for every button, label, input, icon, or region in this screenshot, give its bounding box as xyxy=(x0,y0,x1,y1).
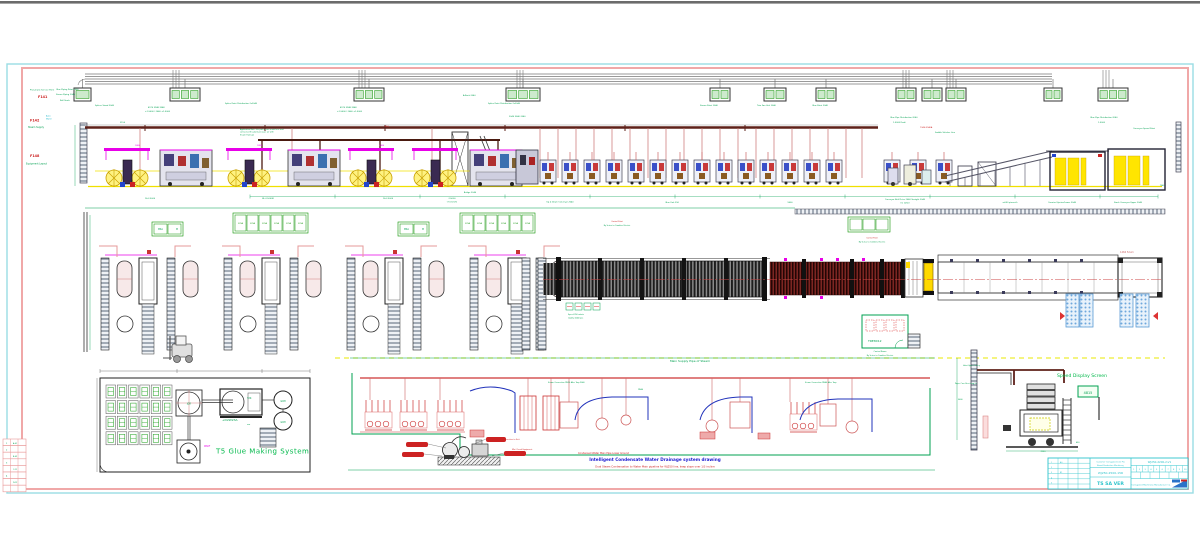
cad-shape xyxy=(356,91,363,99)
cad-shape xyxy=(827,91,834,99)
cad-shape xyxy=(924,91,931,99)
tiny-label: Splice Point Distribution 2x2040 xyxy=(225,102,258,105)
processing-machine xyxy=(470,150,522,186)
revision-row xyxy=(3,485,26,492)
flow-arrow-left xyxy=(1060,312,1065,320)
pallet-area xyxy=(1066,294,1149,327)
tiny-label: (7.5 km/h) xyxy=(447,202,458,204)
cad-drawing-viewport: 370A370A370A370A370A370A370A370A370A370A… xyxy=(0,0,1200,557)
cad-shape xyxy=(1046,91,1052,99)
tiny-label: 9600 xyxy=(787,202,793,204)
tb-company: Corrugated Machinery Manufacture Co. xyxy=(1131,484,1171,487)
cad-shape xyxy=(1054,91,1060,99)
control-room: TRE8X12 xyxy=(862,315,920,348)
label-strip xyxy=(848,217,890,232)
tiny-label: Glue Pipe Distribution 2040 xyxy=(1090,116,1118,119)
control-box xyxy=(710,79,730,101)
label-strips: 370A370A370A370A370A370A370A370A370A370A… xyxy=(152,213,890,236)
mill-roll-stand xyxy=(104,148,150,187)
strip-cell-label: 370A xyxy=(489,222,494,225)
cad-shape xyxy=(948,91,955,99)
incline-conveyor xyxy=(945,151,1052,186)
processing-machine xyxy=(288,150,340,186)
single-facer-unit xyxy=(716,152,732,185)
strip-cell-label: 370A xyxy=(262,222,267,225)
tiny-label: Glue Piping Point 2040 xyxy=(56,88,79,91)
cad-shape xyxy=(818,91,825,99)
tiny-label: +D2W23A xyxy=(222,418,239,422)
tiny-label: 450 xyxy=(1076,442,1080,444)
single-facer-unit xyxy=(650,152,666,185)
tiny-label: Conveyor Belt Drive 2040 Straight 2040 xyxy=(885,198,926,201)
pump-groups xyxy=(365,400,817,432)
tiny-label: By Series to Combine Electric xyxy=(867,354,894,357)
strip-cell-label: 370A xyxy=(250,222,255,225)
tiny-label: B-02 xyxy=(13,456,17,458)
label-strip: 370A370A370A370A370A370A xyxy=(460,213,535,233)
tiny-label: B1 xyxy=(1060,472,1062,474)
tiny-label: Saddle Stitcher Line xyxy=(935,131,956,134)
tiny-label: Mini Circuit Equipment xyxy=(512,448,533,451)
tiny-label: +1,5000 / 2040 +1,5000 xyxy=(337,110,363,113)
cad-shape xyxy=(721,91,728,99)
piping-subtitle: Dual Steam Condensation to Water Main pi… xyxy=(595,465,715,469)
tiny-label: Application Note: the pallets can reach … xyxy=(240,128,284,131)
tiny-label: Steam Connection DN40 After Trap xyxy=(805,381,837,384)
starch-bag-grid xyxy=(106,385,172,445)
tiny-label: 1 xyxy=(1051,462,1052,464)
cad-shape xyxy=(776,91,784,99)
single-facer-unit xyxy=(606,152,622,185)
tiny-label: 1880 xyxy=(379,145,385,147)
tiny-label: M xyxy=(422,228,424,231)
plan-mill-unit xyxy=(222,246,321,354)
label-strip xyxy=(398,222,429,236)
cad-shape xyxy=(766,91,774,99)
control-box xyxy=(1044,79,1062,101)
control-box xyxy=(946,79,966,101)
plan-units xyxy=(99,246,567,354)
cad-shape xyxy=(898,91,905,99)
cad-shape xyxy=(876,219,888,230)
tiny-label: Control Point xyxy=(866,237,878,240)
tiny-label: 5 xyxy=(1051,483,1052,485)
single-facer-unit xyxy=(738,152,754,185)
tiny-label: GCM xyxy=(280,421,285,424)
flow-arrow-right xyxy=(1153,312,1158,320)
tiny-label: DN40 xyxy=(638,389,644,391)
tiny-label: Pneumatic Service Point xyxy=(30,89,54,92)
tiny-label: Stack Conveyor Upper 2040 xyxy=(1114,201,1143,204)
bridge-conveyor xyxy=(543,257,770,301)
tiny-label: 1,5000 xyxy=(1098,122,1106,124)
conveyor-note: 1466 52um xyxy=(1120,251,1134,254)
cad-shape xyxy=(519,91,528,99)
tiny-label: By Series to Combine Electric xyxy=(604,224,631,227)
tiny-label: Steam Connection DN25 After Trap 2040 xyxy=(548,381,585,384)
cad-shape xyxy=(76,91,89,99)
tiny-label: 3 xyxy=(1051,472,1052,474)
tiny-label: 4970 3948 3948 xyxy=(340,107,357,109)
strip-cell-label: 370A xyxy=(465,222,470,225)
tiny-label: BL-2,5000R xyxy=(262,198,274,200)
tiny-label: Steam Supply xyxy=(28,126,45,129)
tb-drawing-no: WJ250-2200-2-V1 xyxy=(1148,460,1172,464)
cad-shape xyxy=(172,91,179,99)
piping-title: Intelligent Condensate Water Drainage sy… xyxy=(589,457,720,462)
tiny-label: Up & Down Conveyor 2040 xyxy=(546,201,574,204)
cad-shape xyxy=(1119,91,1126,99)
tiny-label: Conveyor Speed Point xyxy=(1133,127,1155,130)
cad-shape xyxy=(233,213,308,233)
tiny-label: By Series to Combine Electric xyxy=(859,241,886,244)
pallet-stack xyxy=(1066,294,1079,327)
tiny-label: Splicer Stand 2040 xyxy=(95,104,115,107)
cad-shape xyxy=(863,219,875,230)
tiny-label: 2,5000 xyxy=(449,198,457,200)
steam-rail xyxy=(85,125,878,131)
cad-shape xyxy=(191,91,198,99)
tiny-label: M xyxy=(176,228,178,231)
tiny-label: Splice Point Distribution 2x2040 xyxy=(488,102,521,105)
tiny-label: D-12 xyxy=(13,482,17,484)
tb-project-no: WJ250-2500-15R xyxy=(1098,471,1123,475)
processing-machine xyxy=(160,150,212,186)
tiny-label: Control Point xyxy=(611,220,623,223)
glue-kitchen: T5 Glue Making System xyxy=(97,369,310,472)
tiny-label: 7340-9940A xyxy=(920,126,933,129)
top-edge-bar xyxy=(0,1,1200,4)
tiny-label: Paper Core Receiving 2x xyxy=(955,382,977,385)
cad-shape xyxy=(907,91,914,99)
tiny-label: Speed 250 m/min xyxy=(568,314,584,316)
hanging-control-boxes xyxy=(74,79,1128,101)
tiny-label: F148 xyxy=(30,154,40,158)
tiny-label: a-650 pieces/h xyxy=(1003,202,1019,204)
cad-shape xyxy=(181,91,188,99)
single-facer-unit xyxy=(540,152,556,185)
tiny-label: Auto xyxy=(46,115,51,118)
pallet-stack xyxy=(1080,294,1093,327)
legend-boxes xyxy=(566,303,600,310)
roll-stands-row xyxy=(104,148,458,187)
single-facer-unit xyxy=(628,152,644,185)
tiny-label: Quality 2040 pcs xyxy=(568,317,583,320)
tiny-label: 3150 xyxy=(120,122,126,124)
glue-system-title: T5 Glue Making System xyxy=(215,448,309,456)
double-backer xyxy=(770,258,934,299)
single-facer-unit xyxy=(826,152,842,185)
strip-cell-label: 370A xyxy=(525,222,530,225)
strip-cell-label: 370A xyxy=(274,222,279,225)
cad-shape xyxy=(712,91,719,99)
steam-pump-group xyxy=(400,400,427,430)
tiny-label: 16-2,5000 xyxy=(383,198,394,200)
cad-shape xyxy=(365,91,372,99)
stacker-machines xyxy=(1046,122,1181,190)
steam-pump-group xyxy=(790,402,817,432)
cad-shape xyxy=(850,219,862,230)
control-box xyxy=(896,79,916,101)
cad-shape xyxy=(375,91,382,99)
condensate-label: Condensed Water Main Pipe Lower Ground xyxy=(578,452,629,455)
cad-shape xyxy=(414,224,427,234)
tiny-label: 4970 3948 3948 xyxy=(148,107,165,109)
tiny-label: Glue Pipe Distribution 2040 xyxy=(890,116,918,119)
tiny-label: Hoist Upper Trolley xyxy=(963,364,981,367)
cad-shape xyxy=(168,224,181,234)
room-label: TRE8X12 xyxy=(867,339,882,343)
tiny-label: connected the plant pressure air with xyxy=(240,131,274,134)
tiny-label: C-11 xyxy=(13,469,17,471)
strip-cell-label: 370A xyxy=(286,222,291,225)
tiny-label: Y2K xyxy=(247,397,252,400)
cad-drawing: 370A370A370A370A370A370A370A370A370A370A… xyxy=(0,0,1200,557)
tiny-label: F142 xyxy=(30,119,40,123)
tiny-label: Roll Stock xyxy=(60,99,71,102)
tb-name: TS SA VER xyxy=(1097,481,1124,487)
tiny-label: Counter Ejector/Lower 2040 xyxy=(1048,201,1077,204)
tiny-label: Control Room xyxy=(874,350,887,353)
tiny-label: Equipment Layout xyxy=(26,163,47,166)
tiny-label: Steam Trams-A xyxy=(240,133,254,136)
label-strip: 370A370A370A370A370A370A xyxy=(233,213,308,233)
label-strip xyxy=(152,222,183,236)
tiny-label: 2040 3040 2040 xyxy=(509,116,526,118)
wall-hatch xyxy=(795,209,1165,214)
steam-main-label: Main Supply Pipe of Steam xyxy=(670,359,710,363)
tiny-label: Glue Unit 250 xyxy=(665,201,679,204)
tb-customer-2: Board Production Machinery xyxy=(1097,464,1125,467)
tiny-label: MSA xyxy=(404,228,409,231)
tiny-label: GCM xyxy=(280,400,285,403)
steam-piping-diagram: Main Supply Pipe of Steam Condensed Wate… xyxy=(348,358,935,470)
tiny-label: JGR xyxy=(186,403,191,406)
tiny-label: 2 xyxy=(1051,467,1052,469)
strip-cell-label: 370A xyxy=(513,222,518,225)
tiny-label: F141 xyxy=(38,95,48,99)
control-box xyxy=(764,79,786,101)
strip-cell-label: 370A xyxy=(298,222,303,225)
tiny-label: +1,5000 / 2040 +1,5000 xyxy=(145,110,171,113)
speed-screen-value: 4815 xyxy=(1084,391,1093,395)
cad-shape xyxy=(1109,91,1116,99)
strip-cell-label: 370A xyxy=(501,222,506,225)
tiny-label: Steam Point 2040 xyxy=(700,104,719,107)
mill-roll-stand xyxy=(412,148,458,187)
cad-shape xyxy=(460,213,535,233)
cad-shape xyxy=(529,91,538,99)
plan-view: 370A370A370A370A370A370A370A370A370A370A… xyxy=(84,208,1165,363)
tiny-label: 16-2,5000 xyxy=(145,198,156,200)
tiny-label: Steam Piping 2040 xyxy=(56,93,76,96)
tiny-label: Water xyxy=(46,118,52,121)
pallet-stack xyxy=(1120,294,1133,327)
pallet-stack xyxy=(1136,294,1149,327)
tiny-label: Bridge 2040 xyxy=(464,191,477,194)
tiny-label: W60F xyxy=(204,445,211,448)
speed-screen-label: Speed Display Screen xyxy=(1057,373,1107,379)
tiny-label: Glue Point 2040 xyxy=(812,104,829,107)
single-facer-unit xyxy=(804,152,820,185)
single-facer-unit xyxy=(584,152,600,185)
tiny-label: 1,5000 Prahi xyxy=(893,121,906,124)
strip-cell-label: 370A xyxy=(238,222,243,225)
tiny-label: 2950 xyxy=(1041,451,1047,453)
control-box xyxy=(1098,79,1128,101)
control-box xyxy=(922,79,942,101)
mill-roll-stand xyxy=(348,148,394,187)
plan-mill-unit xyxy=(468,246,567,354)
single-facer-unit xyxy=(782,152,798,185)
tiny-label: Steam Trap Connection to Unit xyxy=(492,438,520,441)
tiny-label: um xyxy=(247,424,250,426)
tiny-label: 5600 xyxy=(958,399,963,401)
cad-shape xyxy=(1100,91,1107,99)
single-facer-unit xyxy=(936,152,952,185)
wall-post xyxy=(80,123,87,183)
steam-pump-group xyxy=(365,400,392,430)
control-box xyxy=(170,79,200,101)
tiny-label: 1880 xyxy=(135,145,141,147)
single-facer-unit xyxy=(694,152,710,185)
control-box xyxy=(816,79,836,101)
single-facer-unit xyxy=(672,152,688,185)
cad-shape xyxy=(957,91,964,99)
strip-cell-label: 370A xyxy=(477,222,482,225)
control-box xyxy=(506,79,540,101)
tiny-label: A-Rack 2040 xyxy=(463,94,476,97)
tiny-label: Trim Fan Unit 2040 xyxy=(757,104,777,107)
tiny-label: (m 1250) xyxy=(900,203,909,205)
cad-shape xyxy=(933,91,940,99)
single-facer-unit xyxy=(562,152,578,185)
title-block: 12345678910 Customer Corrugated Line Pro… xyxy=(1048,458,1188,489)
mill-roll-stand xyxy=(226,148,272,187)
tiny-label: A-01 xyxy=(13,442,17,445)
plan-mill-unit xyxy=(345,246,444,354)
tb-customer-1: Customer Corrugated Line Pro xyxy=(1096,460,1125,463)
single-facer-unit xyxy=(760,152,776,185)
cad-shape xyxy=(508,91,517,99)
tiny-label: 1880 xyxy=(257,145,263,147)
tiny-label: MSA xyxy=(158,228,163,231)
control-box xyxy=(354,79,384,101)
steam-pump-group xyxy=(437,400,464,430)
